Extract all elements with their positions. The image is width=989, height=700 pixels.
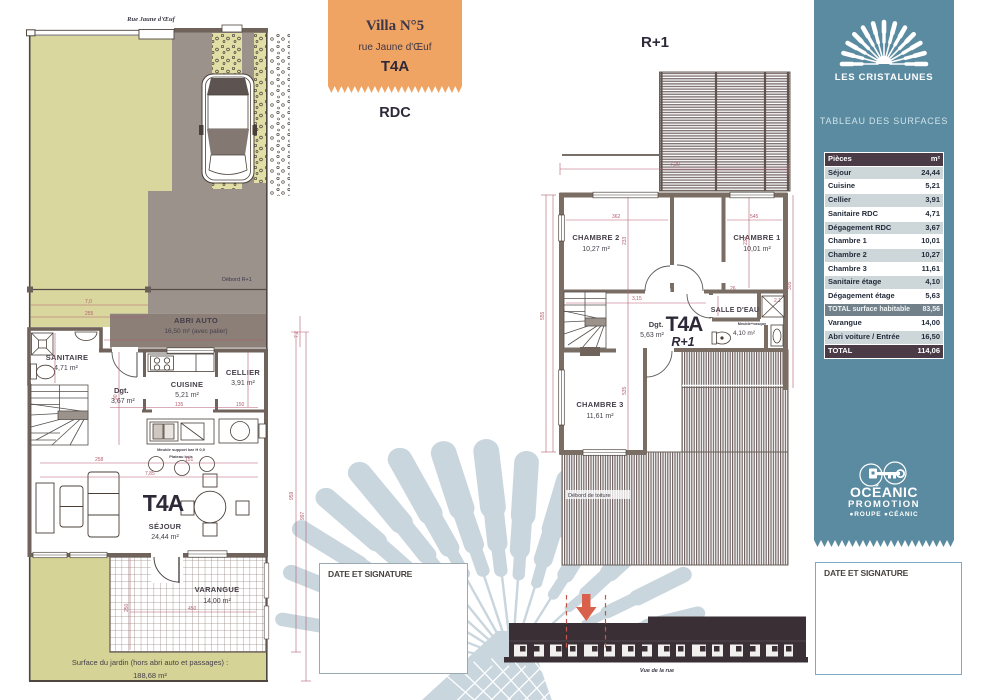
svg-text:135: 135 — [175, 402, 184, 408]
svg-text:150: 150 — [236, 402, 245, 408]
svg-text:997: 997 — [300, 511, 306, 520]
svg-text:CELLIER: CELLIER — [226, 368, 260, 377]
svg-text:Dgt.: Dgt. — [649, 320, 664, 329]
svg-text:14,00 m²: 14,00 m² — [203, 598, 231, 605]
svg-text:90: 90 — [113, 394, 119, 400]
svg-text:258: 258 — [95, 457, 104, 463]
svg-text:233: 233 — [622, 236, 628, 245]
svg-text:Vue de la rue: Vue de la rue — [640, 668, 674, 674]
svg-text:T4A: T4A — [666, 313, 704, 336]
svg-text:7,0: 7,0 — [85, 299, 92, 305]
svg-text:VARANGUE: VARANGUE — [195, 585, 240, 594]
svg-text:555: 555 — [540, 311, 546, 320]
svg-text:CHAMBRE 1: CHAMBRE 1 — [733, 233, 780, 242]
svg-text:3,91 m²: 3,91 m² — [231, 380, 255, 387]
svg-text:5,63 m²: 5,63 m² — [640, 332, 664, 339]
svg-text:T4A: T4A — [143, 490, 184, 516]
svg-text:3,15: 3,15 — [632, 296, 642, 302]
svg-text:10,01 m²: 10,01 m² — [743, 246, 771, 253]
svg-text:255: 255 — [85, 311, 94, 317]
svg-text:CUISINE: CUISINE — [171, 380, 204, 389]
svg-text:SÉJOUR: SÉJOUR — [149, 522, 182, 531]
svg-text:Débord R+1: Débord R+1 — [222, 277, 252, 283]
svg-text:305: 305 — [787, 281, 793, 290]
svg-text:24,44 m²: 24,44 m² — [151, 534, 179, 541]
svg-text:CHAMBRE 2: CHAMBRE 2 — [572, 233, 619, 242]
svg-text:7,85: 7,85 — [145, 471, 155, 477]
svg-text:Rue Jaune d'Œuf: Rue Jaune d'Œuf — [126, 16, 176, 23]
svg-text:959: 959 — [289, 491, 295, 500]
svg-text:2,1: 2,1 — [774, 298, 781, 304]
svg-text:362: 362 — [612, 214, 621, 220]
svg-text:151: 151 — [185, 457, 194, 463]
svg-text:4,71 m²: 4,71 m² — [54, 365, 78, 372]
svg-text:7,2: 7,2 — [294, 331, 300, 338]
svg-text:11,61 m²: 11,61 m² — [586, 413, 614, 420]
svg-text:ABRI AUTO: ABRI AUTO — [174, 316, 218, 325]
svg-text:535: 535 — [622, 386, 628, 395]
svg-text:Dgt.: Dgt. — [114, 386, 129, 395]
svg-text:SANITAIRE: SANITAIRE — [46, 353, 89, 362]
svg-text:CHAMBRE 3: CHAMBRE 3 — [576, 400, 623, 409]
svg-text:4,10 m²: 4,10 m² — [733, 330, 756, 337]
svg-text:10,27 m²: 10,27 m² — [582, 246, 610, 253]
svg-text:16,50 m² (avec palier): 16,50 m² (avec palier) — [164, 328, 227, 335]
svg-text:Débord de toiture: Débord de toiture — [568, 493, 611, 499]
svg-text:5,21 m²: 5,21 m² — [175, 392, 199, 399]
svg-text:450: 450 — [188, 606, 197, 612]
svg-text:233: 233 — [743, 236, 749, 245]
svg-text:26: 26 — [730, 286, 736, 292]
svg-text:545: 545 — [750, 214, 759, 220]
svg-text:Meuble support bar H 0,9: Meuble support bar H 0,9 — [157, 447, 206, 452]
svg-text:188,68 m²: 188,68 m² — [133, 671, 167, 680]
svg-text:Meuble+vasque: Meuble+vasque — [738, 322, 766, 326]
svg-text:R+1: R+1 — [671, 335, 694, 349]
svg-text:7,20: 7,20 — [670, 162, 680, 168]
svg-text:Surface du jardin (hors abri a: Surface du jardin (hors abri auto et pas… — [72, 658, 228, 667]
svg-text:250: 250 — [124, 603, 130, 612]
